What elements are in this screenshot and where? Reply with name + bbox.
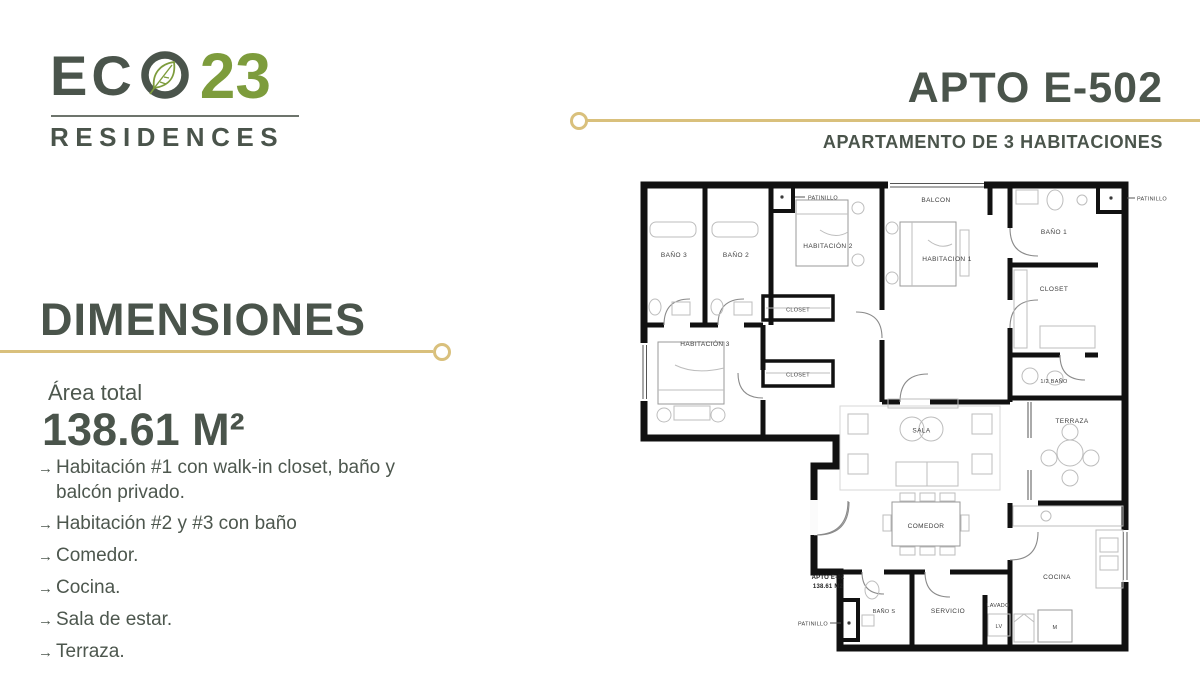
logo-leaf-icon [138, 49, 192, 103]
feature-item: →Sala de estar. [38, 607, 413, 633]
apto-title: APTO E-502 [908, 64, 1163, 113]
room-label-balcon: BALCON [921, 197, 950, 204]
room-label-closet-walkin: CLOSET [1040, 286, 1068, 293]
room-label-hab1: HABITACION 1 [922, 256, 971, 263]
area-total-value: 138.61 M² [42, 404, 245, 456]
page: ECOEC 23 RESIDENCES APTO E-502 APARTAMEN… [0, 0, 1200, 673]
feature-text: Comedor. [56, 543, 413, 569]
feature-item: →Habitación #1 con walk-in closet, baño … [38, 455, 413, 505]
room-label-patinillo-bottom: PATINILLO [798, 622, 828, 628]
floorplan: BAÑO 3 BAÑO 2 PATINILLO HABITACIÓN 2 BAL… [600, 170, 1180, 656]
apto-area-label: 138.61 M2 [813, 584, 844, 590]
header-divider-line [586, 119, 1200, 122]
feature-text: Habitación #1 con walk-in closet, baño y… [56, 455, 413, 505]
room-label-comedor: COMEDOR [908, 523, 945, 530]
room-label-sala: SALA [912, 428, 930, 435]
room-label-bano-s: BAÑO S [873, 608, 896, 615]
feature-item: →Cocina. [38, 575, 413, 601]
area-total-label: Área total [48, 380, 142, 406]
room-label-bano2: BAÑO 2 [723, 250, 749, 259]
room-label-hab3: HABITACIÓN 3 [680, 339, 729, 348]
brand-logo: ECOEC 23 RESIDENCES [50, 44, 310, 153]
arrow-bullet-icon: → [38, 543, 56, 569]
logo-23: 23 [200, 44, 271, 108]
room-label-patinillo-top: PATINILLO [808, 196, 838, 202]
room-label-cocina: COCINA [1043, 574, 1071, 581]
brand-logo-row: ECOEC 23 [50, 44, 310, 108]
dimensions-title: DIMENSIONES [40, 294, 366, 346]
feature-item: →Habitación #2 y #3 con baño [38, 511, 413, 537]
arrow-bullet-icon: → [38, 607, 56, 633]
room-label-hab2: HABITACIÓN 2 [803, 241, 852, 250]
features-list: →Habitación #1 con walk-in closet, baño … [38, 455, 413, 671]
furniture-living [840, 399, 1123, 642]
room-label-half-bano: 1/2 BAÑO [1040, 378, 1068, 385]
feature-text: Habitación #2 y #3 con baño [56, 511, 413, 537]
logo-residences: RESIDENCES [50, 122, 310, 153]
dimensions-divider-circle [433, 343, 451, 361]
arrow-bullet-icon: → [38, 511, 56, 537]
furniture-baths [649, 190, 1087, 626]
label-m: M [1053, 625, 1058, 631]
apto-subtitle: APARTAMENTO DE 3 HABITACIONES [823, 132, 1163, 153]
room-label-bano1: BAÑO 1 [1041, 227, 1067, 236]
feature-text: Terraza. [56, 639, 413, 665]
entry-opening [810, 500, 818, 535]
feature-item: →Comedor. [38, 543, 413, 569]
room-label-lavado: LAVADO [986, 603, 1010, 609]
apto-unit-label: APTO E-02 [812, 575, 845, 581]
room-label-closet-2: CLOSET [786, 373, 810, 379]
door-swings [664, 228, 1085, 597]
floorplan-drawing: BAÑO 3 BAÑO 2 PATINILLO HABITACIÓN 2 BAL… [600, 170, 1180, 656]
label-lv: LV [996, 624, 1003, 630]
room-label-bano3: BAÑO 3 [661, 250, 687, 259]
room-label-terraza: TERRAZA [1055, 418, 1088, 425]
dimensions-divider-line [0, 350, 433, 353]
room-label-servicio: SERVICIO [931, 608, 965, 615]
arrow-bullet-icon: → [38, 575, 56, 601]
feature-text: Cocina. [56, 575, 413, 601]
logo-divider [51, 115, 299, 117]
logo-eco-text: ECOEC [50, 48, 136, 104]
room-label-closet-1: CLOSET [786, 308, 810, 314]
arrow-bullet-icon: → [38, 639, 56, 665]
feature-item: →Terraza. [38, 639, 413, 665]
arrow-bullet-icon: → [38, 455, 56, 505]
feature-text: Sala de estar. [56, 607, 413, 633]
entry-door-swing [817, 502, 849, 535]
room-label-patinillo-right: PATINILLO [1137, 197, 1167, 203]
